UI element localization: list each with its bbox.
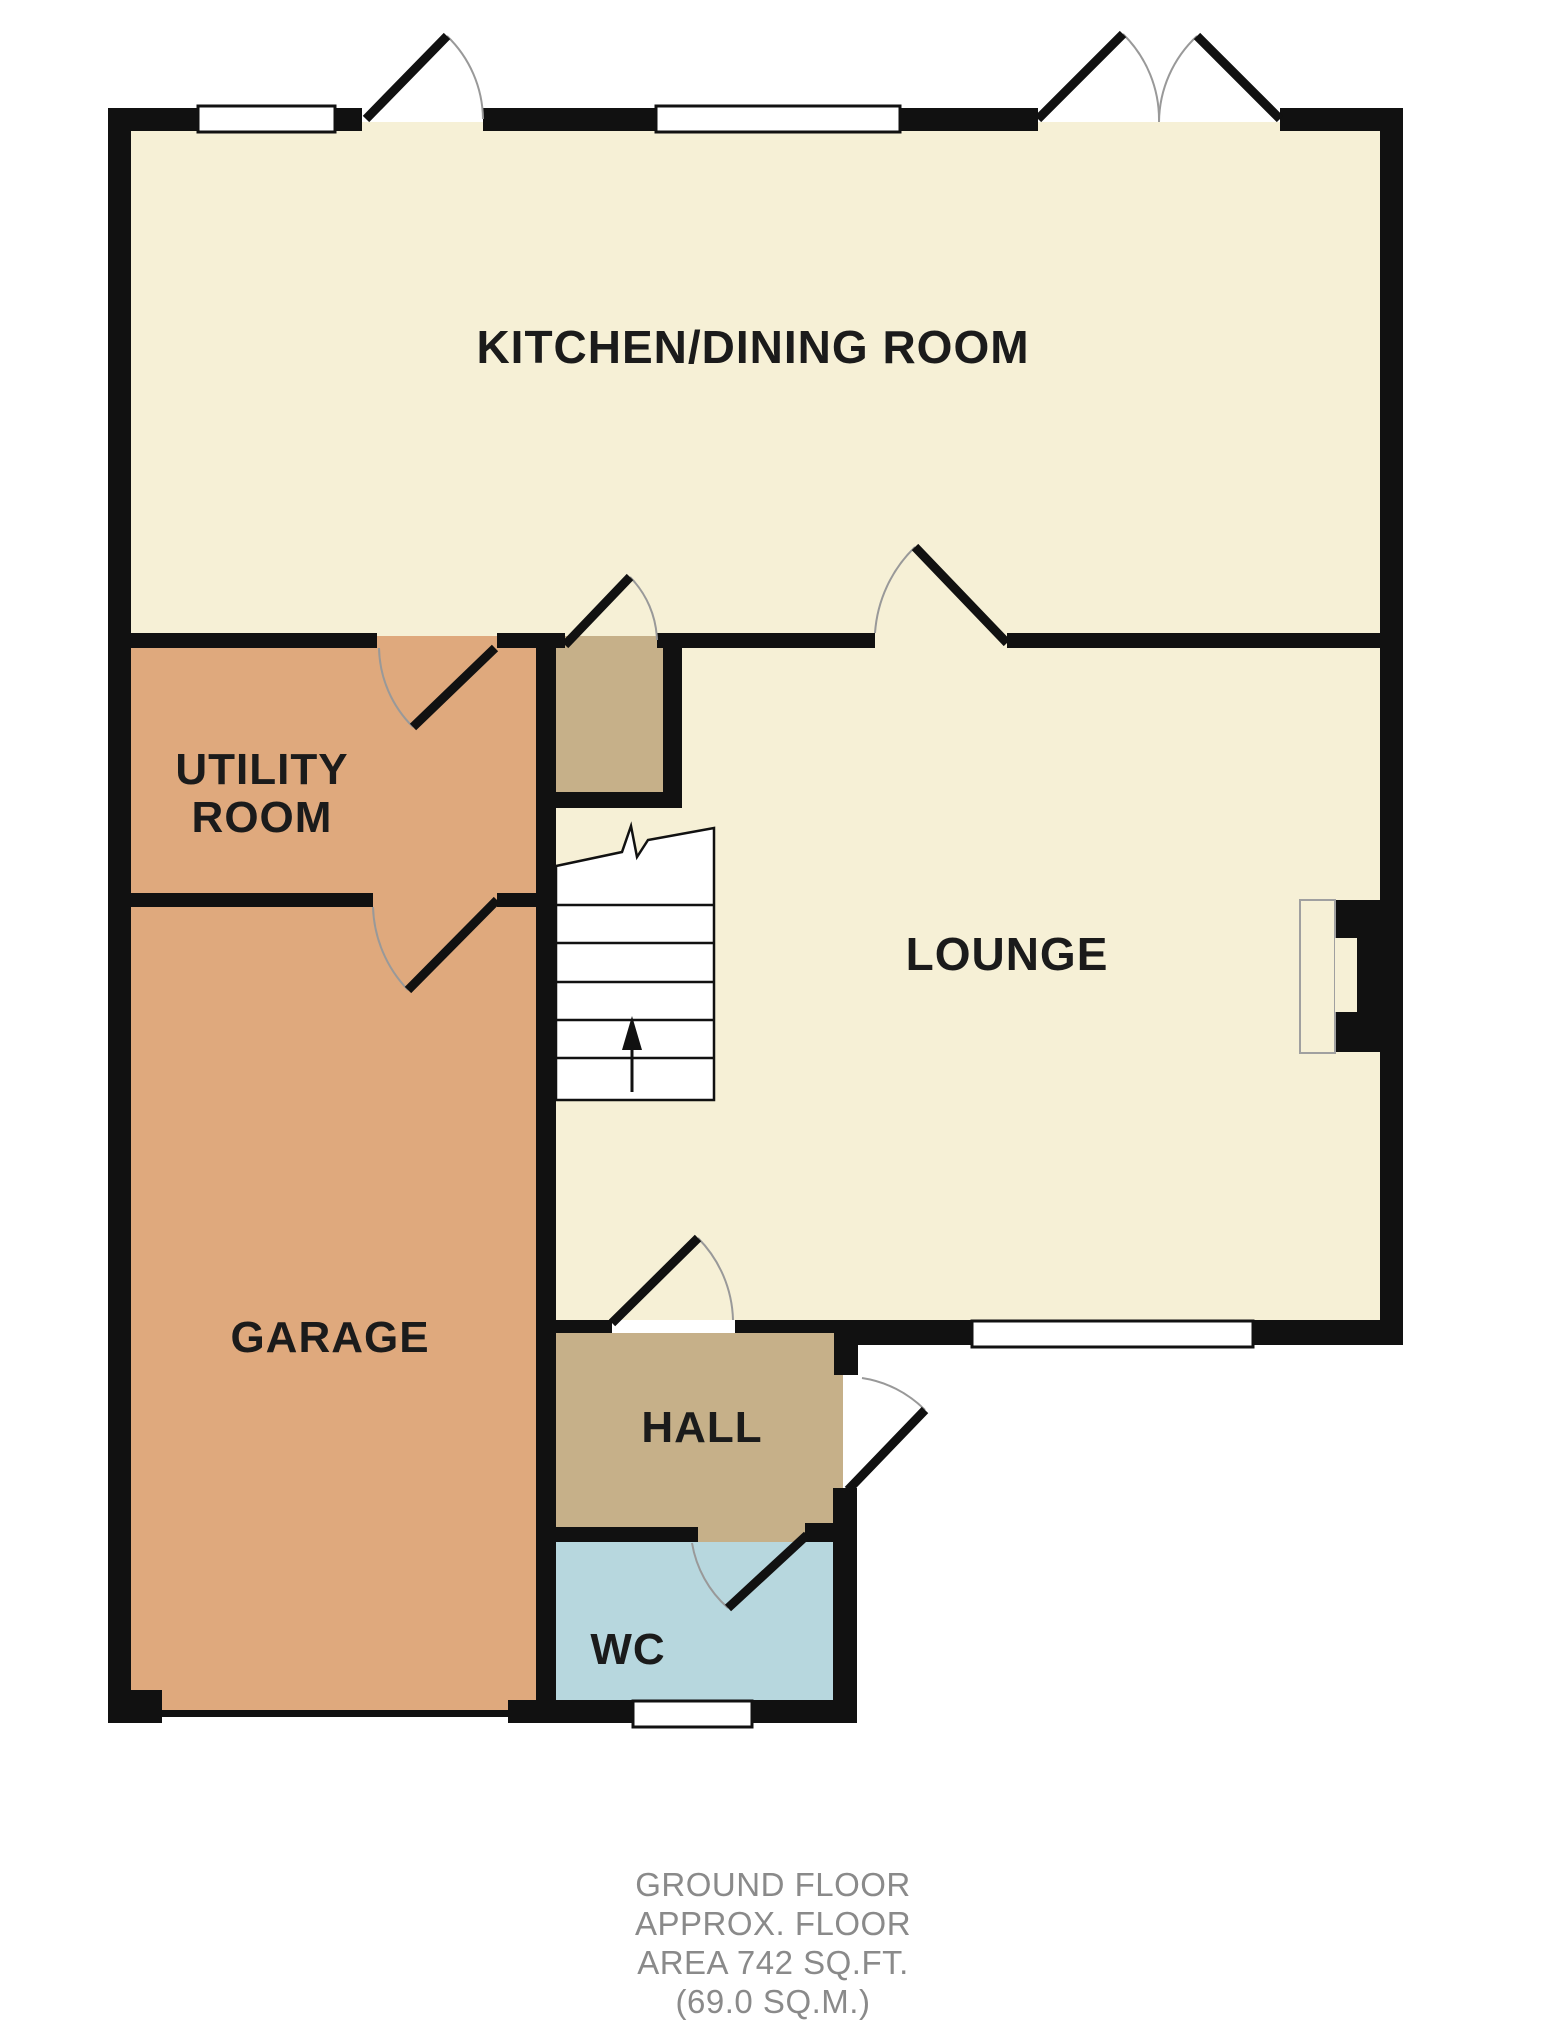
stairs <box>556 826 714 1100</box>
lounge-label: LOUNGE <box>906 927 1109 981</box>
wall-top-4 <box>900 108 1038 131</box>
wall-utility-garage-stub <box>497 893 538 907</box>
wall-top-2 <box>335 108 362 131</box>
utility-label-line1: UTILITY <box>175 746 348 794</box>
cupboard-floor <box>556 636 663 792</box>
kitchen-back-door <box>366 36 447 119</box>
kitchen-floor <box>131 122 1380 648</box>
kitchen-window-1 <box>198 106 335 132</box>
wall-kitchen-lounge-2 <box>1007 633 1380 648</box>
wall-hall-wc-stub <box>805 1523 833 1542</box>
wall-top-3 <box>483 108 656 131</box>
caption-area-sqft: AREA 742 SQ.FT. <box>635 1943 911 1982</box>
garage-label: GARAGE <box>230 1313 429 1363</box>
fireplace-recess <box>1335 938 1357 1012</box>
caption-approx: APPROX. FLOOR <box>635 1904 911 1943</box>
french-door-right-arc <box>1159 36 1197 122</box>
wall-left <box>108 108 131 1723</box>
wall-central-vertical <box>536 633 556 1700</box>
hall-label: HALL <box>641 1403 762 1453</box>
french-door-left <box>1038 34 1123 119</box>
floorplan-drawing <box>0 0 1545 2025</box>
wc-label: WC <box>590 1625 665 1675</box>
wall-utility-garage <box>108 893 373 907</box>
wall-bottom-pier <box>108 1690 162 1723</box>
kitchen-label: KITCHEN/DINING ROOM <box>476 320 1029 374</box>
caption-area-sqm: (69.0 SQ.M.) <box>635 1982 911 2021</box>
wall-cupboard-bottom <box>556 792 682 808</box>
wall-front-door-stub <box>834 1320 858 1375</box>
hearth <box>1300 900 1335 1053</box>
floor-area-caption: GROUND FLOOR APPROX. FLOOR AREA 742 SQ.F… <box>635 1865 911 2021</box>
front-door-arc <box>862 1378 925 1410</box>
lounge-window <box>972 1321 1253 1347</box>
garage-door-line <box>162 1710 508 1717</box>
caption-floor-name: GROUND FLOOR <box>635 1865 911 1904</box>
wall-hall-wc <box>556 1527 698 1542</box>
garage-floor <box>131 900 536 1710</box>
wall-kitchen-utility <box>131 633 377 648</box>
kitchen-window-2 <box>656 106 900 132</box>
wall-kitchen-lounge-1 <box>657 633 875 648</box>
french-door-right <box>1197 36 1280 119</box>
wall-right <box>1380 108 1403 1345</box>
french-door-left-arc <box>1123 34 1159 122</box>
utility-label-line2: ROOM <box>175 794 348 842</box>
wall-cupboard-right <box>663 633 682 808</box>
utility-label: UTILITY ROOM <box>175 746 348 842</box>
wall-hall-right <box>833 1488 857 1723</box>
front-door <box>848 1410 925 1490</box>
floorplan: KITCHEN/DINING ROOM UTILITY ROOM LOUNGE … <box>0 0 1545 2025</box>
kitchen-back-door-arc <box>447 36 483 119</box>
wc-window <box>633 1701 752 1727</box>
wc-floor <box>556 1542 833 1700</box>
wall-hall-top-1 <box>556 1320 612 1333</box>
